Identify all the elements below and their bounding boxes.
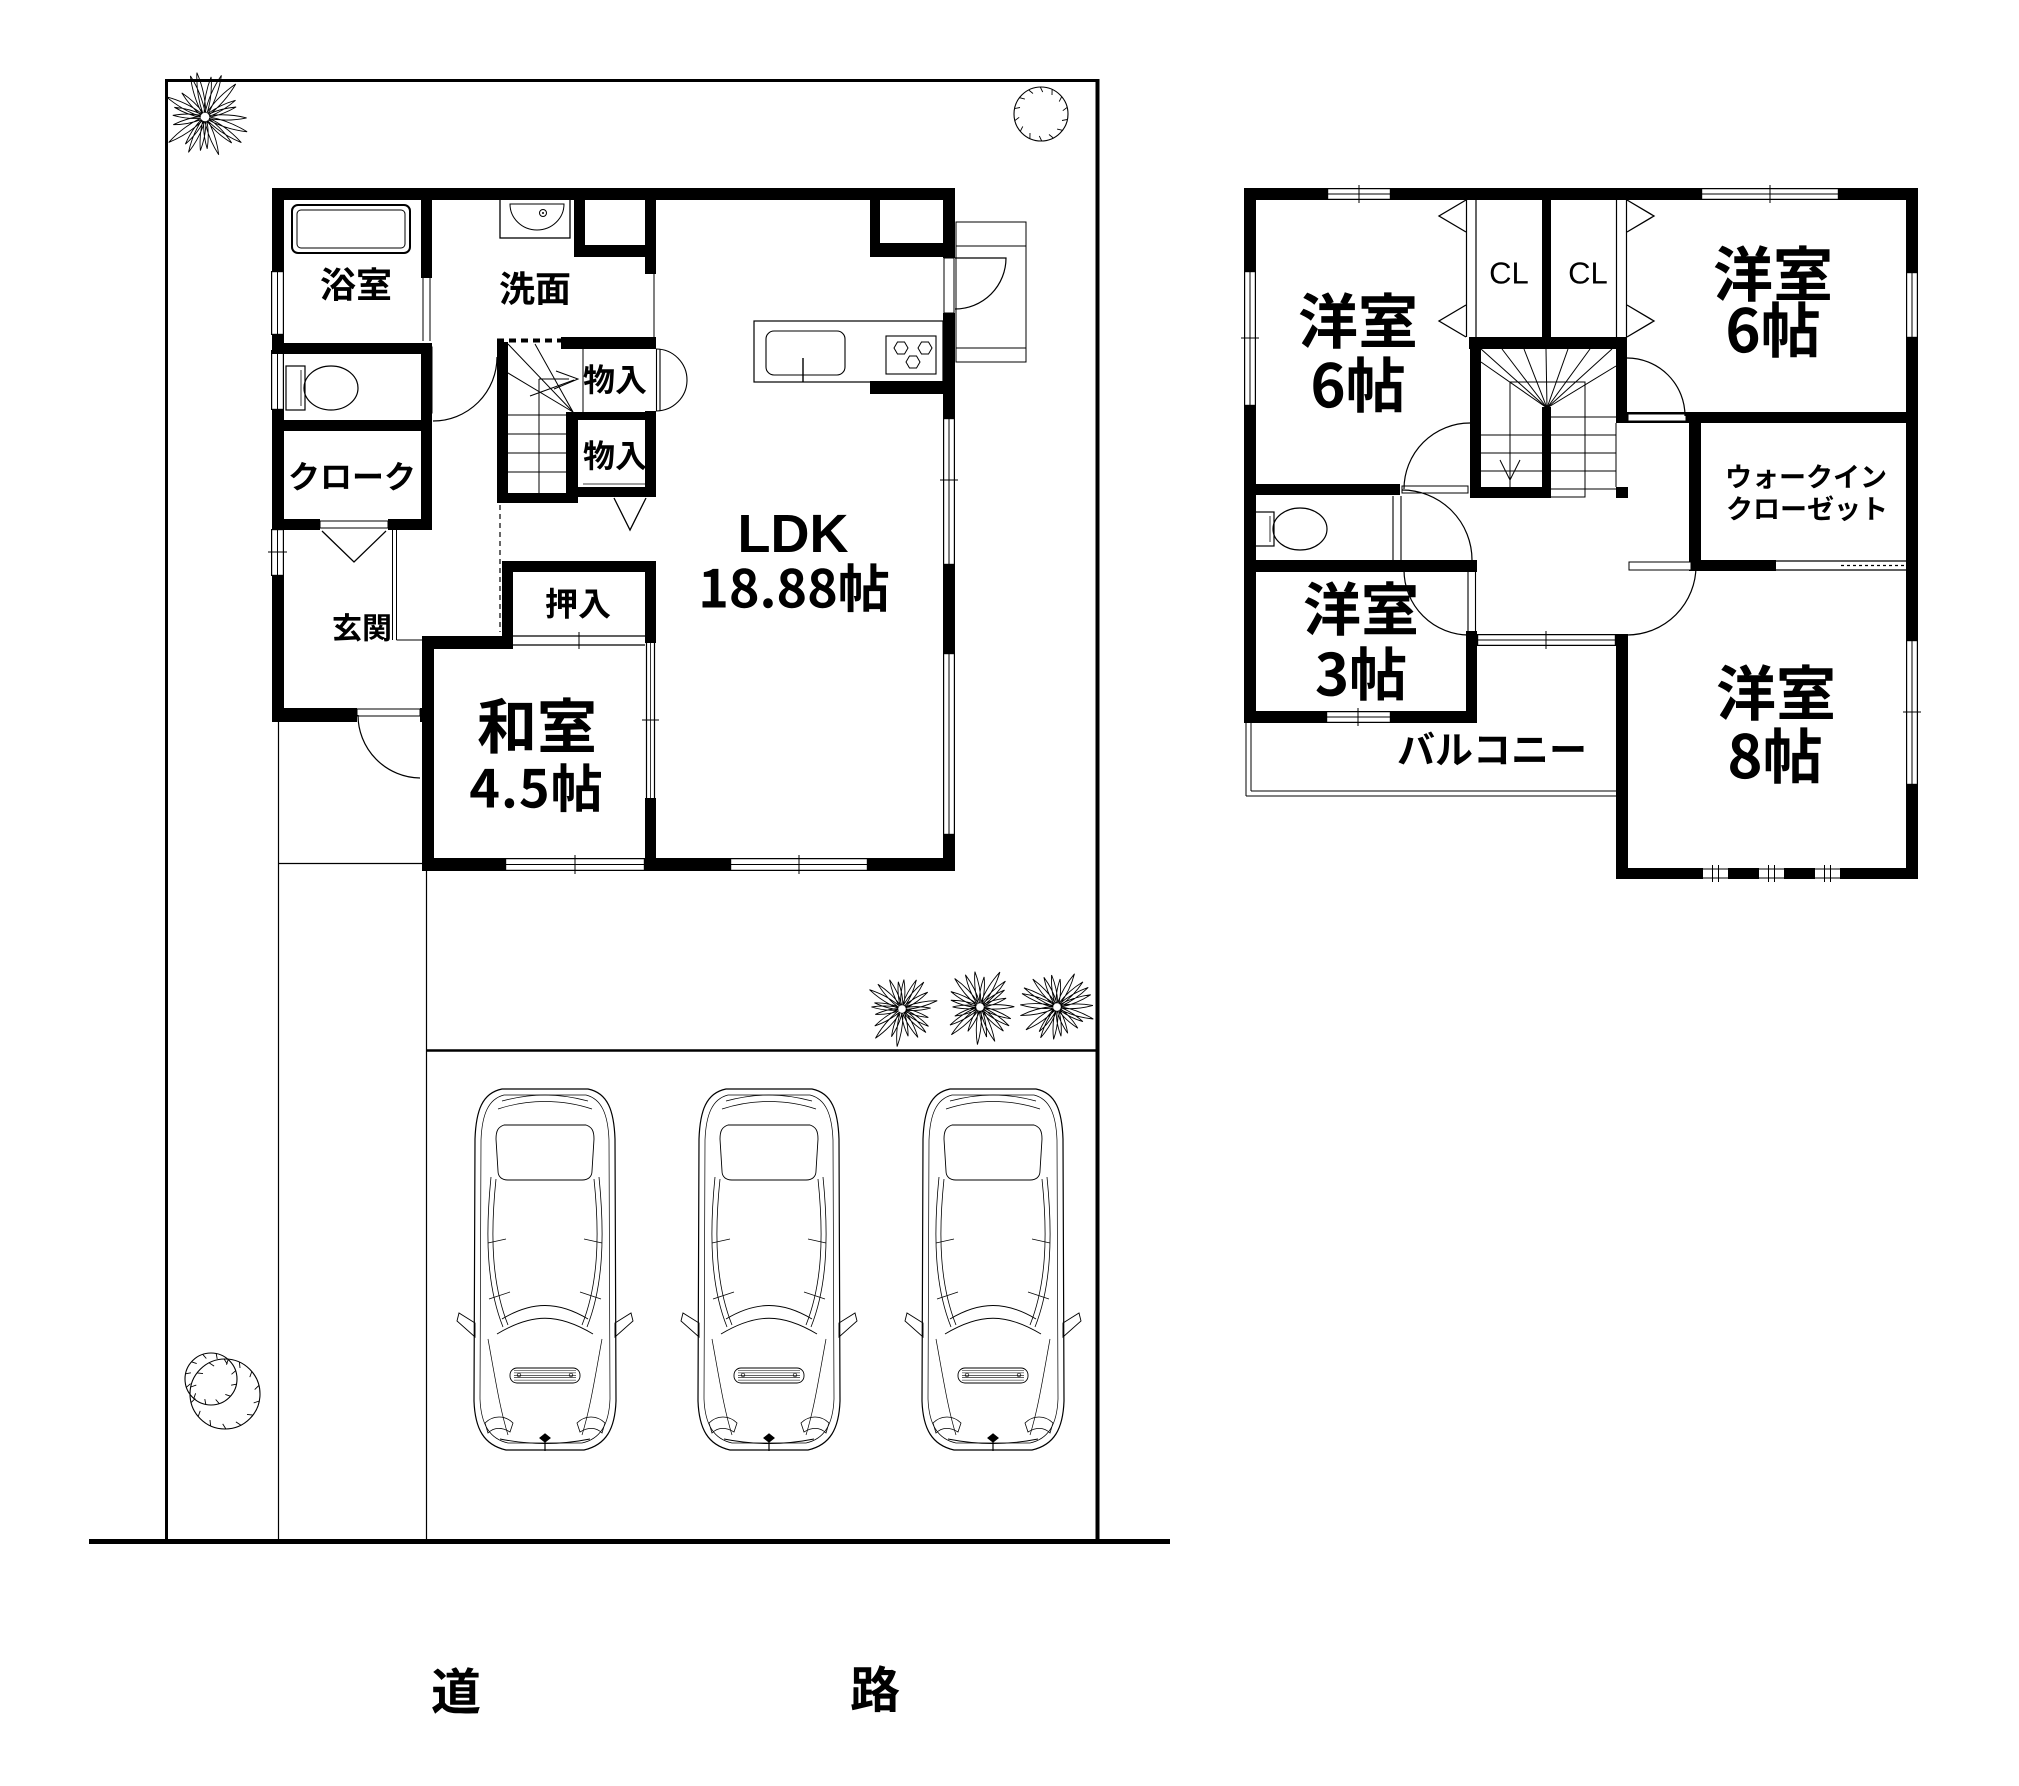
svg-text:LDK: LDK [738,504,849,564]
svg-text:CL: CL [1568,256,1608,291]
svg-text:CL: CL [1489,256,1529,291]
